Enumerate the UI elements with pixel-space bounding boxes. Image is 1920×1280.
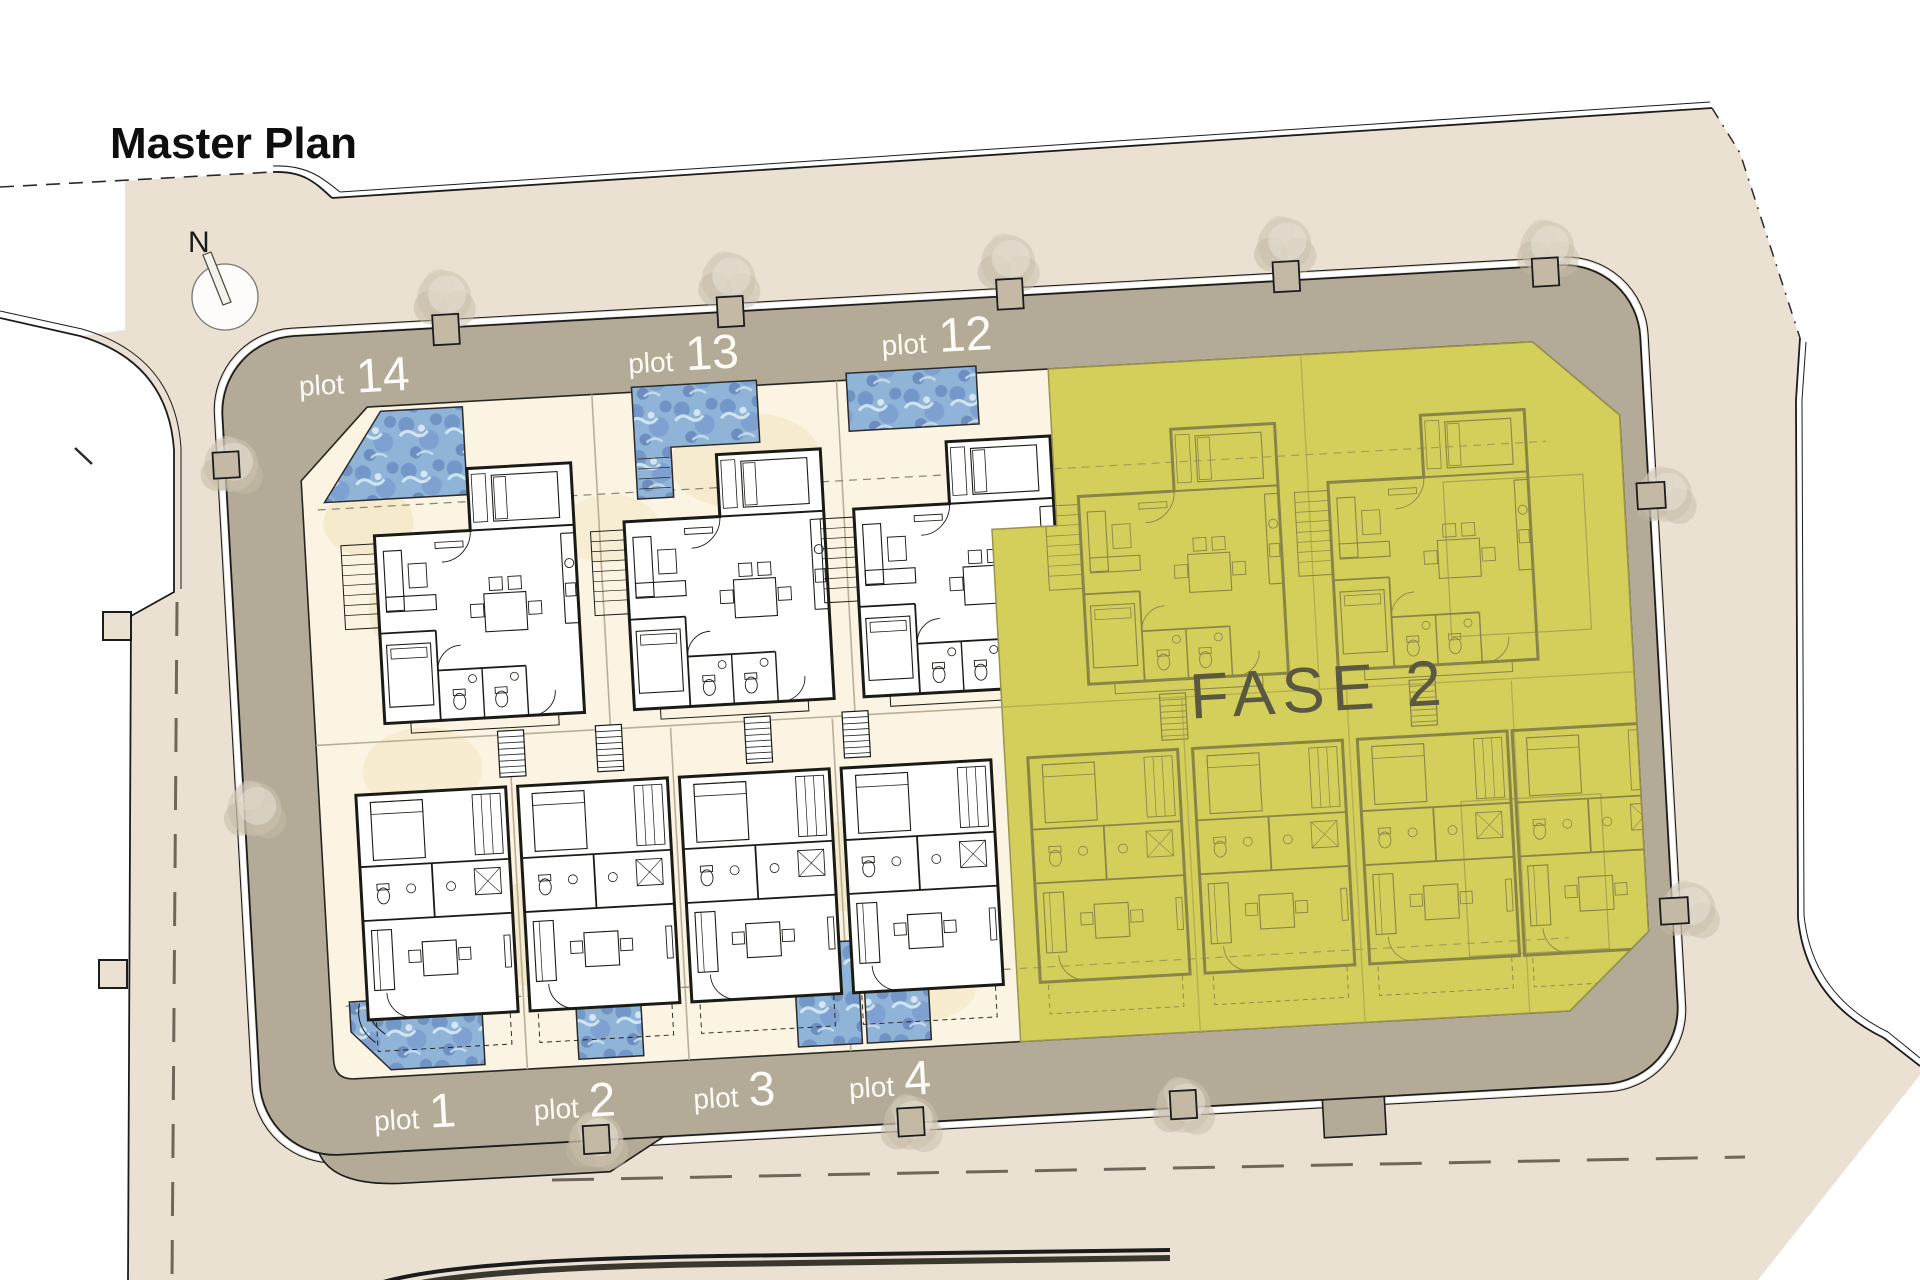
- plot-num: 12: [937, 307, 993, 363]
- plot-word: plot: [848, 1071, 895, 1104]
- plot-word: plot: [692, 1081, 739, 1114]
- plot-num: 2: [587, 1073, 617, 1127]
- plot-word: plot: [298, 368, 345, 401]
- plot-word: plot: [373, 1103, 420, 1136]
- plot-num: 4: [903, 1052, 933, 1106]
- master-plan-page: plot 14 plot 13 plot 12 plot 1 plot 2 pl…: [0, 0, 1920, 1280]
- phase2-label: FASE 2: [1188, 646, 1451, 732]
- page-title: Master Plan: [110, 119, 357, 168]
- master-plan-drawing: plot 14 plot 13 plot 12 plot 1 plot 2 pl…: [0, 0, 1920, 1280]
- utility-box: [103, 612, 131, 640]
- plot-num: 13: [684, 325, 740, 381]
- plot-word: plot: [627, 346, 674, 379]
- plot-word: plot: [533, 1092, 580, 1125]
- plot-num: 14: [355, 348, 411, 404]
- utility-box: [99, 960, 127, 988]
- plot-word: plot: [881, 328, 928, 361]
- pool-plot12: [846, 366, 979, 431]
- site: plot 14 plot 13 plot 12 plot 1 plot 2 pl…: [190, 193, 1731, 1198]
- plot-num: 3: [747, 1062, 777, 1116]
- plot-num: 1: [428, 1084, 458, 1138]
